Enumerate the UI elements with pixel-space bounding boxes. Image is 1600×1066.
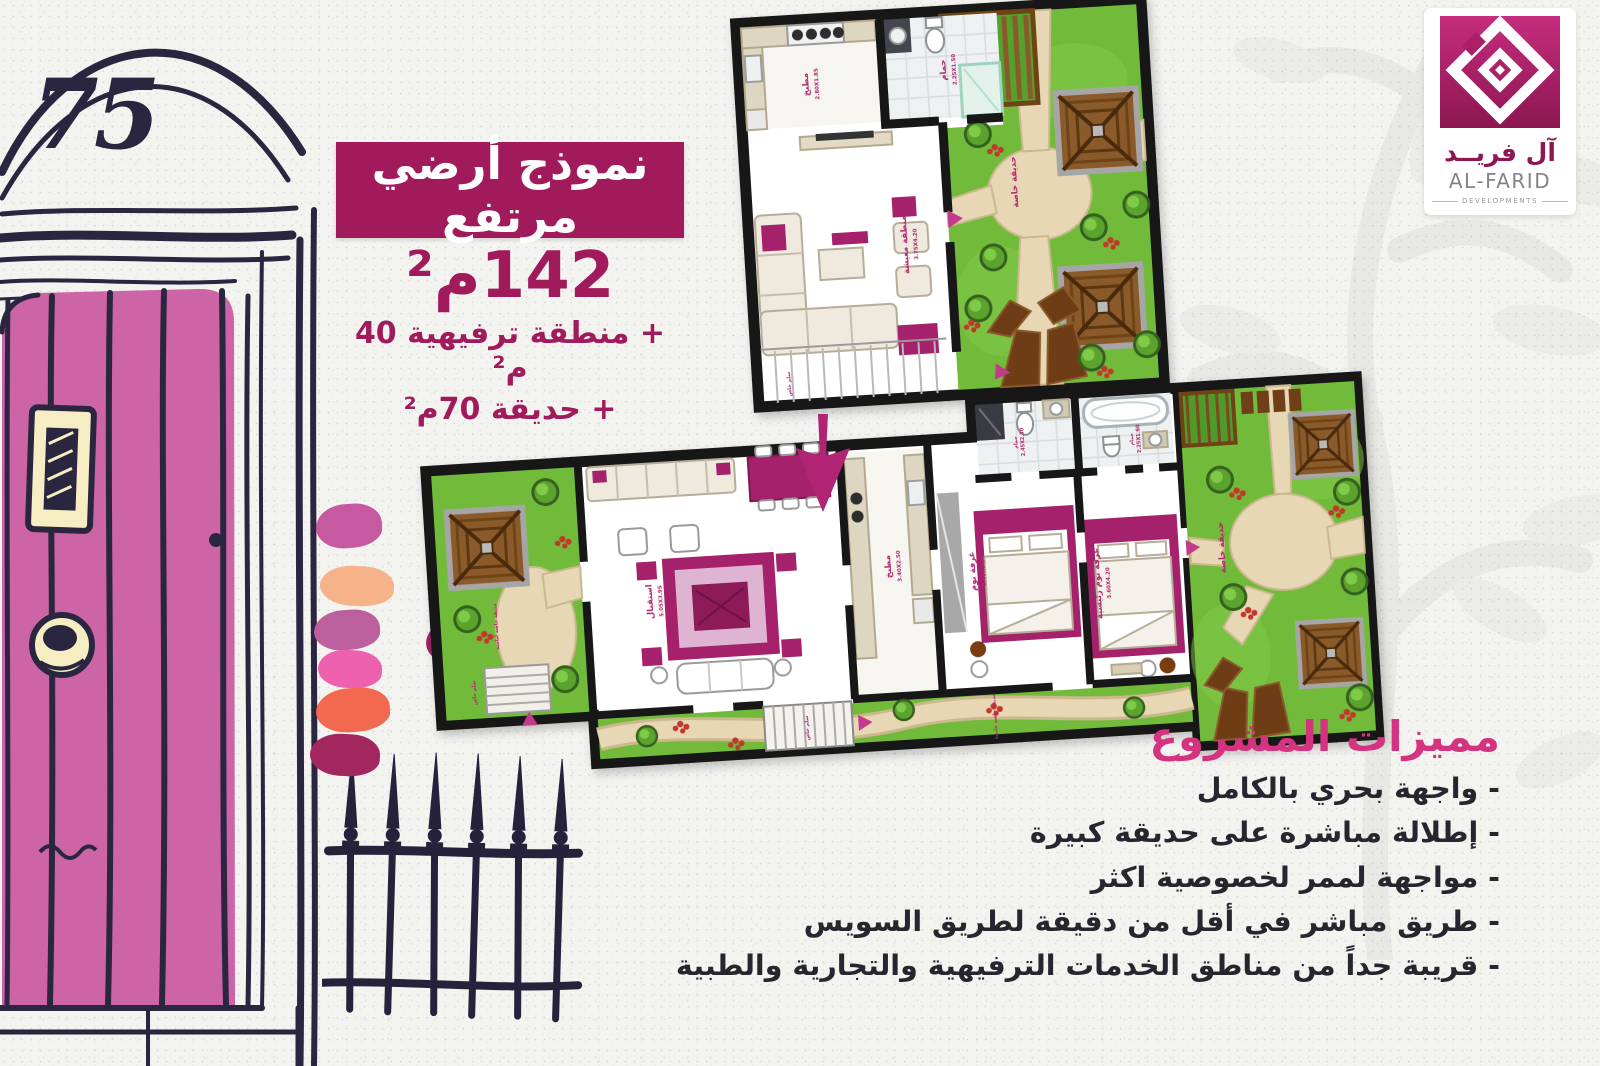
door-step	[0, 1008, 300, 1066]
rug	[662, 552, 780, 661]
features-section: مميزات المشروع - واجهة بحري بالكامل - إط…	[620, 712, 1500, 995]
door-knob	[32, 615, 92, 675]
offer-banner: نموذج أرضي مرتفع	[336, 142, 684, 238]
front-garden	[431, 467, 590, 730]
svg-text:مطبخ: مطبخ	[801, 73, 812, 97]
mail-slot	[28, 407, 94, 531]
door-pilaster	[247, 210, 315, 1066]
door-latch-dot	[209, 533, 223, 547]
sofa	[676, 658, 774, 694]
logo-card: آل فريــد AL-FARID DEVELOPMENTS	[1424, 8, 1576, 215]
logo-brand-arabic: آل فريــد	[1432, 138, 1568, 167]
feature-item: - إطلالة مباشرة على حديقة كبيرة	[620, 817, 1500, 848]
poster: 75	[0, 0, 1600, 1066]
offer-area: 142م²	[336, 244, 684, 308]
offer-block: نموذج أرضي مرتفع 142م² + منطقة ترفيهية 4…	[336, 142, 684, 427]
gazebo	[1056, 88, 1141, 173]
feature-item: - مواجهة لممر لخصوصية اكثر	[620, 862, 1500, 893]
features-title: مميزات المشروع	[620, 712, 1500, 761]
offer-extra-recreation: + منطقة ترفيهية 40 م²	[336, 316, 684, 386]
floorplan-top: مطبخ2.80X1.85 حمام2.25X1.50 منطقة معيشة3…	[728, 0, 1172, 414]
feature-item: - واجهة بحري بالكامل	[620, 773, 1500, 804]
right-garden	[1174, 381, 1381, 742]
entrance-arrow-icon	[786, 412, 860, 516]
kitchen	[741, 20, 881, 130]
svg-text:حمام: حمام	[1129, 432, 1136, 445]
door-number: 75	[32, 58, 156, 171]
svg-text:مطبخ: مطبخ	[883, 555, 894, 579]
feature-item: - طريق مباشر في أقل من دقيقة لطريق السوي…	[620, 906, 1500, 937]
logo-brand-english: AL-FARID	[1432, 169, 1568, 193]
svg-text:حمام: حمام	[938, 59, 949, 81]
feature-item: - قريبة جداً من مناطق الخدمات الترفيهية …	[620, 950, 1500, 981]
logo-mark-icon	[1440, 16, 1560, 128]
logo-tagline: DEVELOPMENTS	[1432, 197, 1568, 205]
svg-text:حمام: حمام	[1013, 436, 1020, 449]
door-illustration: 75	[0, 0, 332, 1066]
garden-pergola	[1180, 391, 1235, 446]
offer-extra-garden: + حديقة 70م²	[336, 392, 684, 427]
